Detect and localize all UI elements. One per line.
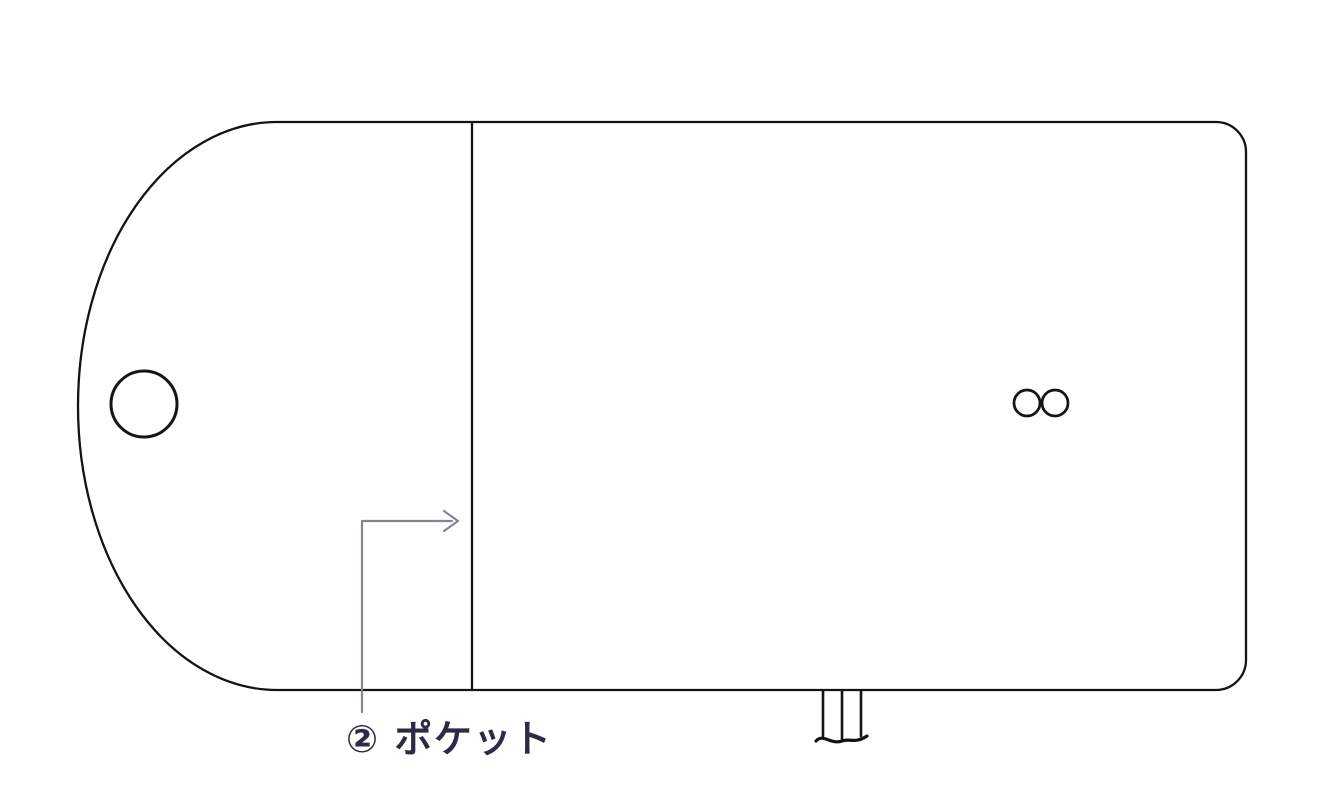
pocket-leader-line: [362, 511, 458, 712]
diagram-canvas: ② ポケット: [0, 0, 1330, 790]
pattern-piece-outline: [78, 122, 1246, 690]
snap-hole-left: [1014, 390, 1040, 416]
pocket-label: ② ポケット: [346, 717, 552, 761]
grommet-hole: [111, 371, 177, 437]
snap-hole-right: [1042, 390, 1068, 416]
pattern-diagram: ② ポケット: [0, 0, 1330, 790]
bottom-strap: [816, 691, 867, 742]
leader-line-path: [362, 521, 452, 712]
